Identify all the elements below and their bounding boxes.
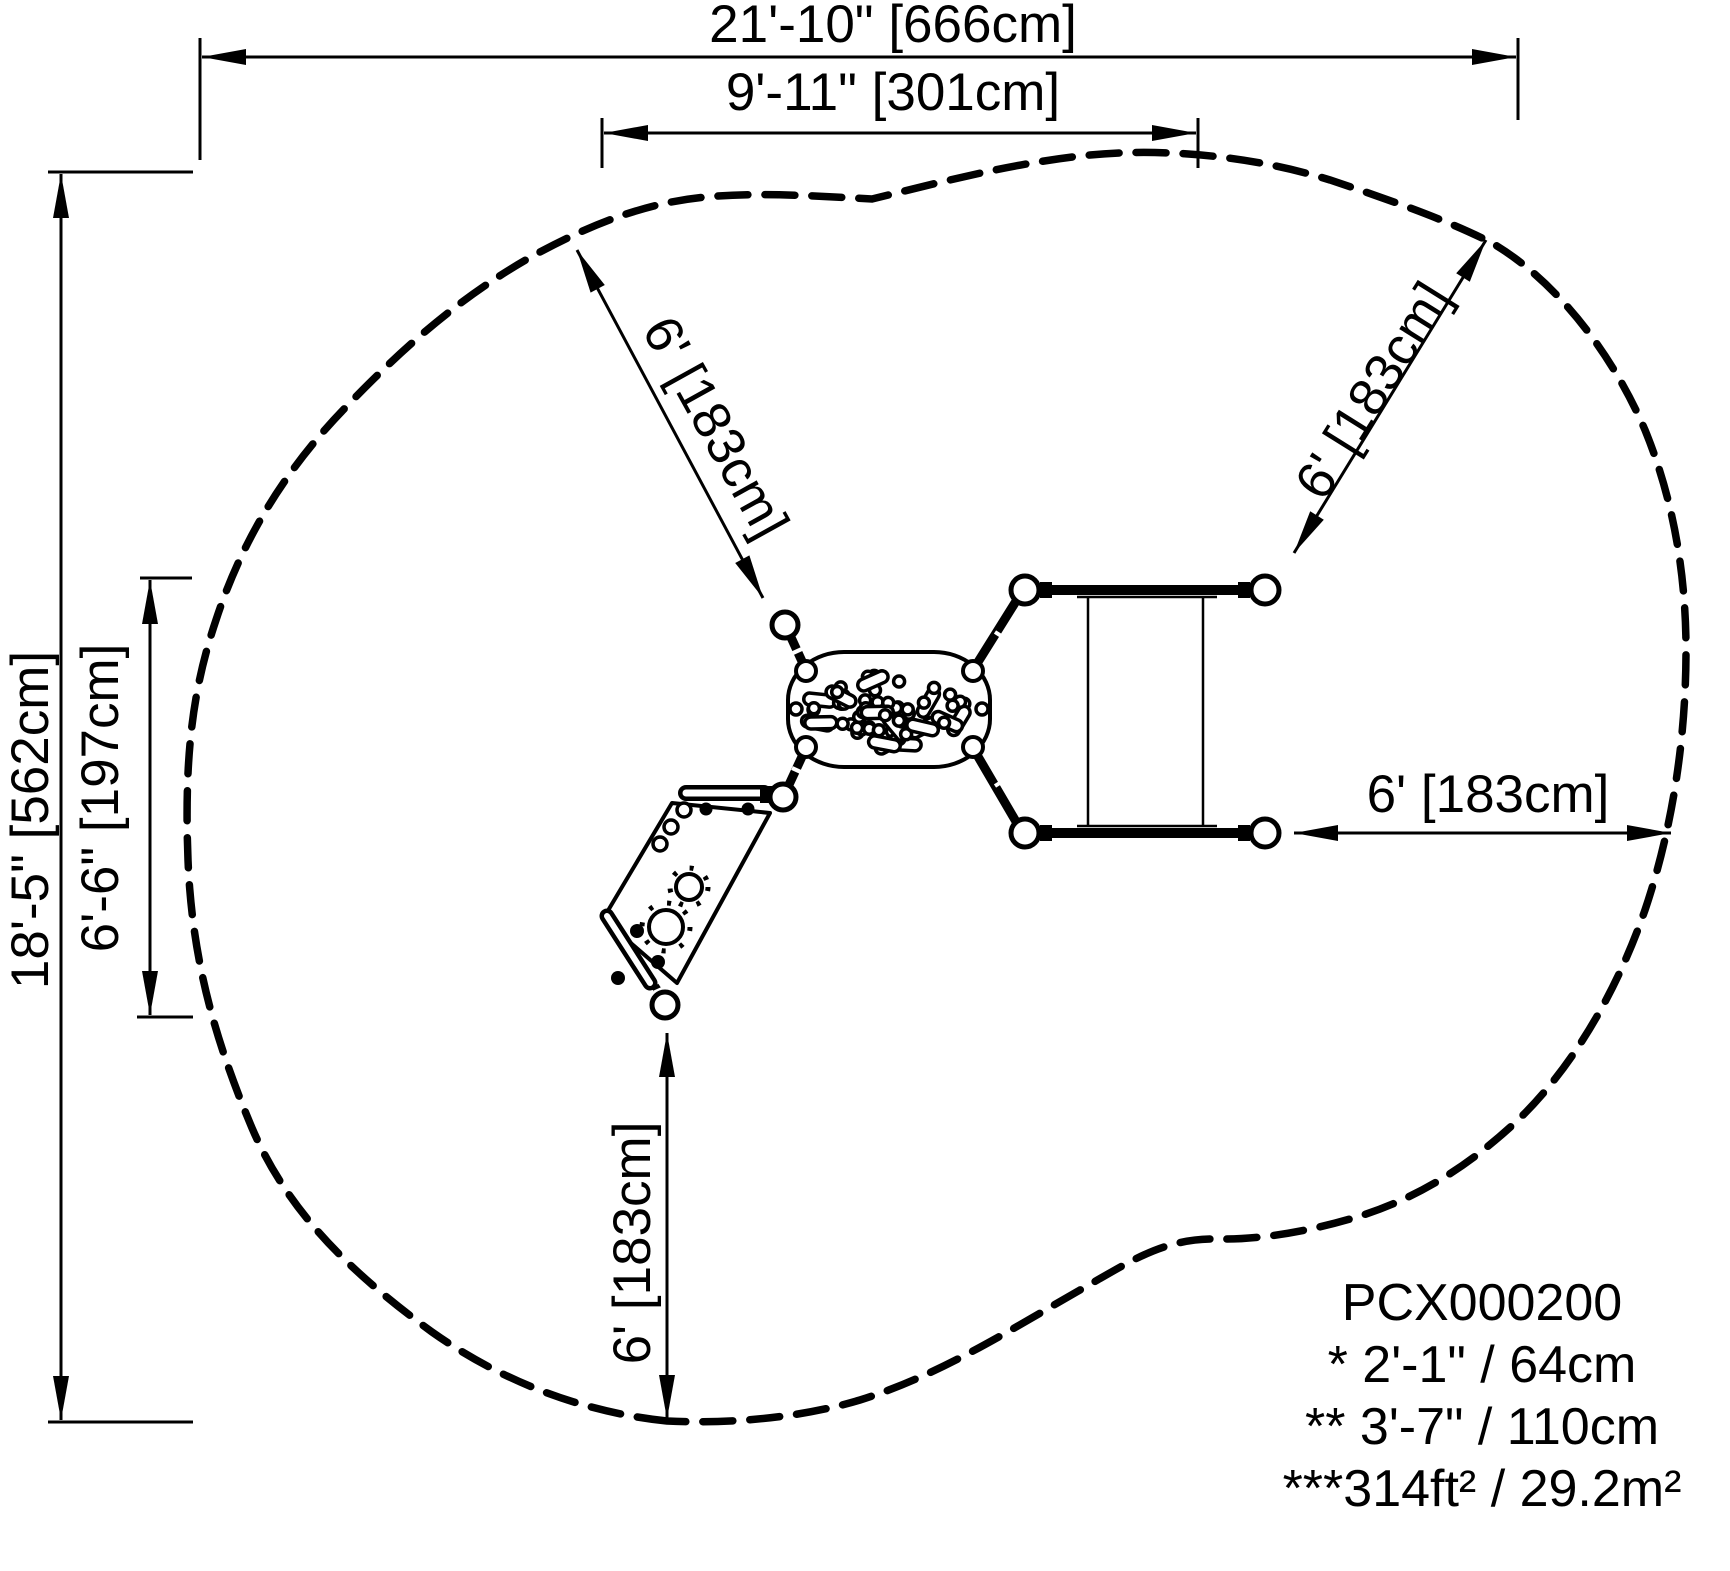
- dimension-label-overall-depth: 18'-5" [562cm]: [1, 651, 60, 989]
- bolt: [963, 661, 983, 681]
- post: [652, 992, 678, 1018]
- dimension-label-use-zone-ne: 6' [183cm]: [1284, 272, 1463, 509]
- bridge-structure: [1039, 582, 1251, 841]
- arrowhead: [659, 1033, 675, 1077]
- note-use-zone-area: ***314ft² / 29.2m²: [1283, 1460, 1682, 1518]
- post: [1011, 576, 1039, 604]
- note-fall-height: * 2'-1" / 64cm: [1328, 1336, 1637, 1394]
- arrowhead: [142, 580, 158, 624]
- arrowhead: [53, 174, 69, 218]
- dimension-label-overall-width: 21'-10" [666cm]: [709, 0, 1077, 54]
- bolt: [963, 737, 983, 757]
- info-block: PCX000200 * 2'-1" / 64cm ** 3'-7" / 110c…: [1283, 1274, 1682, 1518]
- bolt: [790, 703, 802, 715]
- climb-hole: [880, 710, 891, 721]
- arrowhead: [577, 250, 605, 293]
- arrowhead: [142, 971, 158, 1015]
- climb-hole: [873, 725, 884, 736]
- dimension-label-use-zone-south: 6' [183cm]: [603, 1122, 662, 1365]
- hand-hold: [649, 910, 683, 944]
- arrowhead: [1472, 49, 1516, 65]
- slide-structure: [603, 786, 774, 998]
- arrowhead: [735, 555, 763, 598]
- hand-hold: [676, 874, 702, 900]
- post: [1011, 819, 1039, 847]
- climb-hole: [852, 722, 863, 733]
- climb-hole: [808, 703, 819, 714]
- climb-hole: [837, 718, 848, 729]
- arrowhead: [1294, 511, 1324, 553]
- post: [772, 612, 798, 638]
- climb-slot: [805, 717, 837, 730]
- site-plan-svg: 21'-10" [666cm] 9'-11" [301cm] 18'-5" [5…: [0, 0, 1730, 1571]
- arrowhead: [1294, 825, 1338, 841]
- climb-hole: [947, 700, 958, 711]
- dimension-label-use-zone-east: 6' [183cm]: [1367, 765, 1610, 824]
- climb-hole: [832, 687, 843, 698]
- dimension-label-inner-width: 9'-11" [301cm]: [726, 63, 1060, 122]
- arrowhead: [53, 1376, 69, 1420]
- dimension-use-zone-nw: 6' [183cm]: [577, 250, 800, 598]
- note-highest-point: ** 3'-7" / 110cm: [1305, 1398, 1659, 1456]
- bolt: [796, 737, 816, 757]
- dimension-use-zone-south: 6' [183cm]: [603, 1033, 675, 1419]
- arrowhead: [659, 1375, 675, 1419]
- climb-hole: [902, 704, 913, 715]
- model-number: PCX000200: [1342, 1274, 1622, 1332]
- playground-plan-drawing: 21'-10" [666cm] 9'-11" [301cm] 18'-5" [5…: [0, 0, 1730, 1571]
- dimension-label-inner-depth: 6'-6" [197cm]: [71, 644, 130, 953]
- arrowhead: [1152, 125, 1196, 141]
- climb-hole: [939, 717, 950, 728]
- dimension-inner-depth: 6'-6" [197cm]: [71, 578, 193, 1017]
- post: [1251, 576, 1279, 604]
- climb-hole: [929, 682, 940, 693]
- bolt: [976, 703, 988, 715]
- climb-hole: [918, 697, 929, 708]
- climb-hole: [894, 676, 905, 687]
- dimension-use-zone-east: 6' [183cm]: [1294, 765, 1671, 841]
- arrowhead: [202, 49, 246, 65]
- climber-mat: [787, 598, 1018, 825]
- dimension-use-zone-ne: 6' [183cm]: [1284, 240, 1486, 553]
- arrowhead: [1456, 240, 1486, 282]
- post: [770, 784, 796, 810]
- arrowhead: [604, 125, 648, 141]
- post: [1251, 819, 1279, 847]
- bolt: [796, 661, 816, 681]
